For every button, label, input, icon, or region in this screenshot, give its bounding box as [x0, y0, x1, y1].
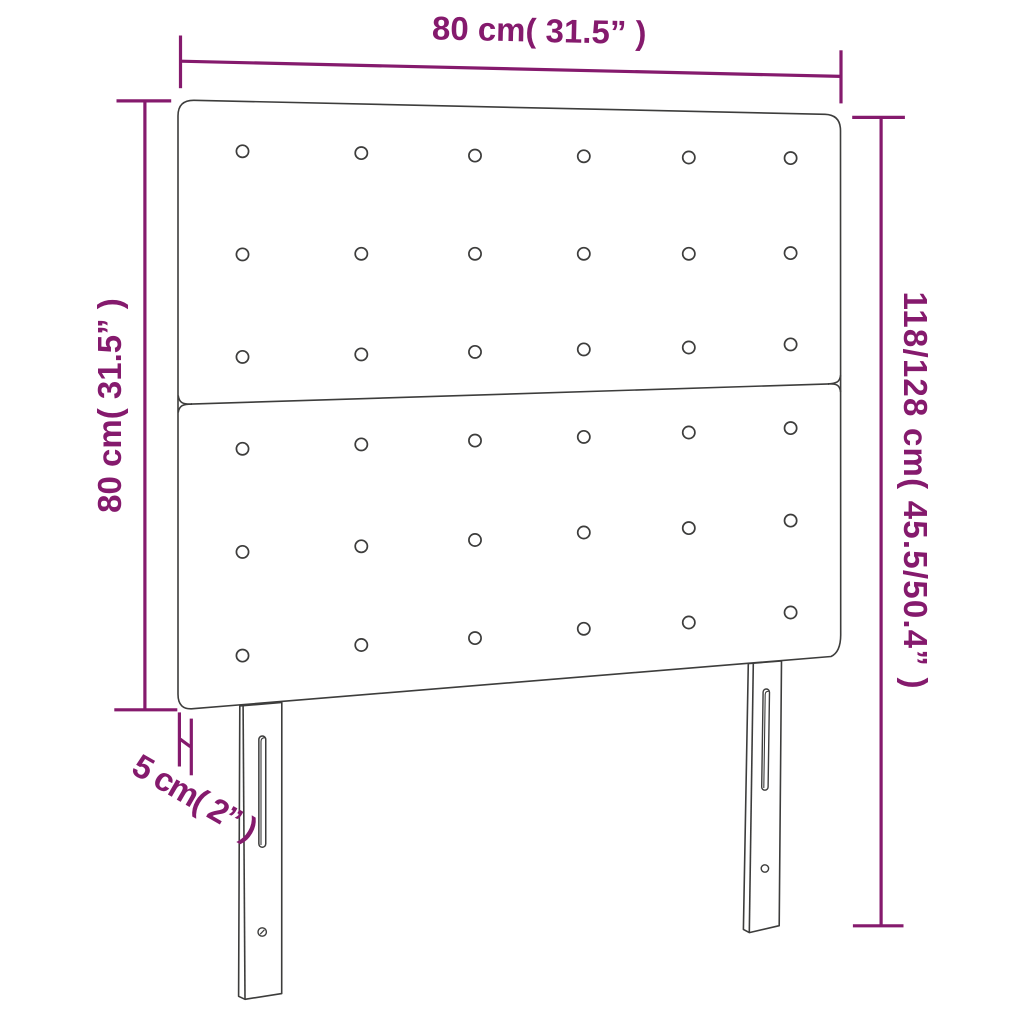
svg-text:80 cm( 31.5” ): 80 cm( 31.5” )	[91, 298, 128, 513]
svg-text:118/128 cm( 45.5/50.4” ): 118/128 cm( 45.5/50.4” )	[897, 292, 934, 689]
svg-text:80 cm( 31.5” ): 80 cm( 31.5” )	[432, 9, 647, 51]
